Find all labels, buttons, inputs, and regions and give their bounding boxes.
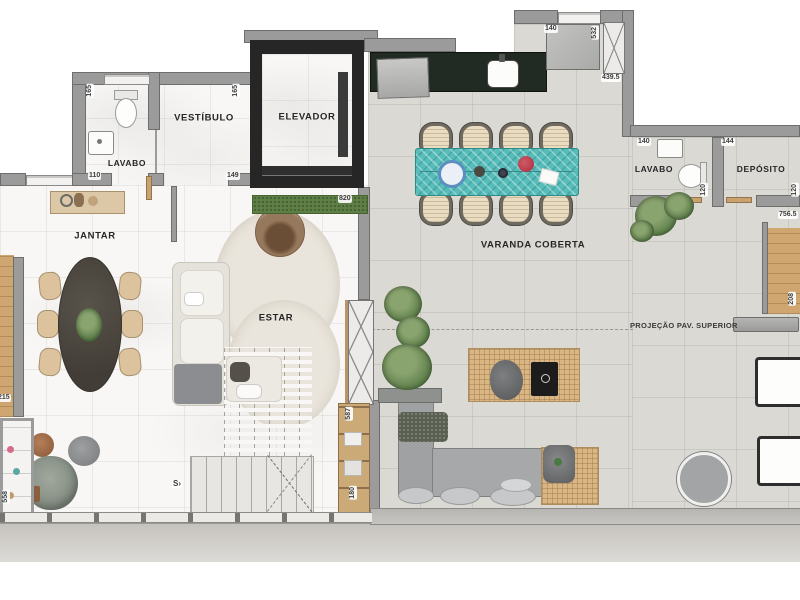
kitchen-sink xyxy=(487,60,519,88)
wall-divider-thin xyxy=(155,130,157,175)
bench-pillow-stack xyxy=(500,478,532,492)
room-label-lavabo2: LAVABO xyxy=(635,164,673,174)
wall-deck-edge xyxy=(762,222,768,314)
shelf-item xyxy=(344,432,362,446)
wall-lavabo2-deposito xyxy=(712,137,724,207)
dining-chair xyxy=(540,191,572,225)
dim-lavabo1-height: 165 xyxy=(86,84,94,98)
jantar-chair xyxy=(118,271,143,301)
knit-throw xyxy=(398,412,448,442)
lounger-top xyxy=(755,357,800,407)
plant-corner-2 xyxy=(664,192,694,220)
stone-table-plant-icon xyxy=(554,458,562,466)
window-left xyxy=(26,175,74,186)
room-label-projecao: PROJEÇÃO PAV. SUPERIOR xyxy=(630,321,730,330)
sideboard-sphere xyxy=(88,196,98,206)
dim-shelf-upper: 587 xyxy=(345,407,353,421)
duct-cabinet xyxy=(348,300,374,405)
jantar-chair xyxy=(38,271,63,301)
shelf-item xyxy=(344,460,362,476)
dining-chair xyxy=(500,191,532,225)
elevator-door xyxy=(262,166,352,176)
dim-lavabo1-width: 110 xyxy=(88,172,101,180)
sofa-chaise-dark xyxy=(174,364,222,404)
dim-varanda-top: 439.5 xyxy=(601,74,621,82)
wall-lavabo-left xyxy=(72,72,86,185)
sideboard-ring-decor xyxy=(60,194,73,207)
dim-kitchen-opening: 140 xyxy=(544,25,558,33)
left-wood-bench xyxy=(0,255,14,417)
jantar-chair xyxy=(37,310,59,338)
side-table xyxy=(230,362,250,382)
upper-floor-beam xyxy=(733,317,799,332)
wall-top-a xyxy=(514,10,558,24)
round-side-table xyxy=(677,452,731,506)
stairs-direction-arrow-icon: › xyxy=(178,479,181,488)
dim-vestibulo-height: 165 xyxy=(232,84,240,98)
wall-left-jantar xyxy=(13,257,24,417)
jantar-chair xyxy=(118,347,143,377)
dim-left-bench: 215 xyxy=(0,394,11,402)
deck-mat-upper xyxy=(468,348,580,402)
jantar-chair xyxy=(121,310,143,338)
terrace-band xyxy=(0,523,800,562)
dark-plate xyxy=(474,166,485,177)
lavabo1-sink-drain-icon xyxy=(97,139,102,144)
stairs-direction-marker: S› xyxy=(172,480,182,488)
plant-bush-2 xyxy=(396,316,430,348)
dim-deck-height: 208 xyxy=(788,292,796,306)
blue-plate xyxy=(438,160,466,188)
wall-top-left xyxy=(72,72,252,85)
terrace-parapet xyxy=(370,508,800,525)
vestibule-block-floor xyxy=(72,72,252,185)
door-lavabo1 xyxy=(146,176,152,200)
dim-shelf-lower: 180 xyxy=(349,486,357,500)
bench-cushion xyxy=(440,487,480,505)
sofa-cushion xyxy=(180,318,224,364)
wall-top-kitchen xyxy=(364,38,456,52)
faucet-icon xyxy=(499,54,505,62)
window-lavabo xyxy=(104,74,150,85)
door-deposito xyxy=(726,197,752,203)
cabinet-decor-pink xyxy=(7,446,14,453)
glass-wall-bottom xyxy=(0,512,372,523)
room-label-vestibulo: VESTÍBULO xyxy=(174,113,234,124)
room-label-lavabo1: LAVABO xyxy=(108,158,146,168)
room-label-estar: ESTAR xyxy=(259,313,294,324)
dim-deposito-height: 120 xyxy=(791,183,799,197)
room-label-elevador: ELEVADOR xyxy=(279,112,336,123)
pouf-gray xyxy=(68,436,100,466)
floor-plan: S› LAVABO VESTÍBULO ELEVADOR JANTAR ESTA… xyxy=(0,0,800,600)
dim-lavabo2-width: 140 xyxy=(637,138,651,146)
cooktop-appliance xyxy=(376,57,429,99)
window-top xyxy=(558,12,602,24)
wall-deposito-bottom xyxy=(756,195,800,207)
lounger-bottom xyxy=(757,436,800,486)
dim-deposito-width: 144 xyxy=(721,138,735,146)
dark-bowl xyxy=(498,168,508,178)
wall-bottom-left-a xyxy=(0,173,26,186)
dim-shaft-height: 532 xyxy=(591,26,599,40)
plant-bush-3 xyxy=(382,344,432,390)
room-label-jantar: JANTAR xyxy=(74,231,115,242)
jantar-chair xyxy=(38,347,63,377)
ottoman-pillow xyxy=(236,384,262,399)
stairs-lower-flight xyxy=(190,456,314,514)
dim-planter-width: 820 xyxy=(338,195,352,203)
table-centerpiece xyxy=(76,308,102,342)
wall-right-wing-top xyxy=(630,125,800,137)
dim-vestibulo-width: 149 xyxy=(226,172,240,180)
shaft-duct xyxy=(603,22,625,74)
red-flowers xyxy=(518,156,534,172)
dim-lavabo2-height: 120 xyxy=(700,183,708,197)
lavabo1-toilet-bowl xyxy=(115,98,137,128)
dining-chair xyxy=(460,191,492,225)
dim-left-cabinet: 558 xyxy=(2,490,10,504)
room-label-varanda: VARANDA COBERTA xyxy=(481,240,585,251)
lavabo2-sink xyxy=(657,139,683,158)
sofa-pillow xyxy=(184,292,204,306)
dining-chair xyxy=(420,191,452,225)
cabinet-decor-teal xyxy=(13,468,20,475)
bench-cushion xyxy=(398,487,434,504)
plant-corner-3 xyxy=(630,220,654,242)
dim-deck-width: 756.5 xyxy=(778,211,798,219)
armchair xyxy=(255,207,305,257)
planter-box xyxy=(378,388,442,403)
sideboard-vase xyxy=(74,193,84,207)
wall-stub-estar xyxy=(171,186,177,242)
fire-table-icon xyxy=(541,374,550,383)
room-label-deposito: DEPÓSITO xyxy=(737,164,786,174)
stone-pouf xyxy=(490,360,523,400)
elevator-door-rail xyxy=(338,72,348,157)
